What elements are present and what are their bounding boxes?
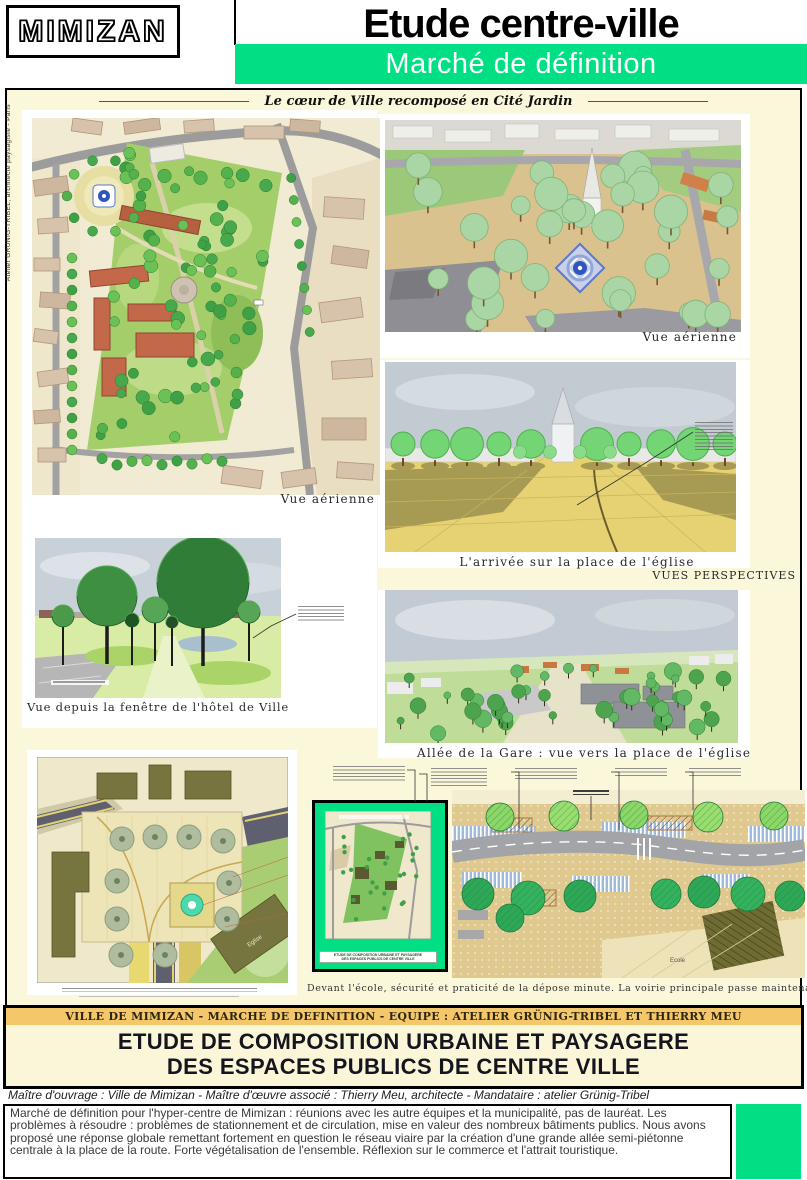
micro-annotation-2: [431, 768, 487, 788]
micro-annotation-5: [689, 768, 741, 778]
caption-plan-aerial: Vue aérienne: [157, 492, 375, 506]
footer-title-box: VILLE DE MIMIZAN - MARCHE DE DEFINITION …: [3, 1005, 804, 1089]
key-plan-caption: ETUDE DE COMPOSITION URBAINE ET PAYSAGER…: [319, 951, 437, 963]
tagline-rule-left: [99, 101, 249, 102]
caption-allee: Allée de la Gare : vue vers la place de …: [417, 746, 739, 760]
key-plan-inset: ETUDE DE COMPOSITION URBAINE ET PAYSAGER…: [312, 800, 448, 972]
arrival-view-image: [385, 362, 736, 552]
micro-annotation-3: [515, 768, 577, 781]
poster-board: Atelier GRUNIG-TRIBEL, architecte paysag…: [5, 88, 802, 1007]
credits-line: Maître d'ouvrage : Ville de Mimizan - Ma…: [8, 1088, 788, 1102]
hotel-window-view-image: [35, 538, 281, 698]
church-square-plan-image: Eglise: [37, 757, 288, 983]
mimizan-logo-box: MIMIZAN: [6, 5, 180, 58]
school-street-plan-image: Ecole: [452, 790, 805, 978]
micro-annotation-hotel: [298, 606, 344, 622]
subtitle-bar: Marché de définition: [235, 44, 807, 84]
section-label-vues-perspectives: VUES PERSPECTIVES: [576, 569, 796, 582]
car-icon: [254, 300, 263, 305]
caption-school: Devant l'école, sécurité et praticité de…: [307, 983, 747, 994]
page-subtitle: Marché de définition: [385, 48, 656, 81]
allee-gare-view-image: [385, 590, 738, 743]
header-divider: [234, 0, 236, 45]
ecole-label: Ecole: [670, 958, 686, 964]
study-title: ETUDE DE COMPOSITION URBAINE ET PAYSAGER…: [6, 1029, 801, 1079]
description-box: Marché de définition pour l'hyper-centre…: [3, 1104, 732, 1179]
site-plan-image: [32, 118, 380, 495]
key-plan-image: [325, 811, 431, 939]
fountain-icon: [93, 185, 115, 207]
micro-caption-plan-2: [79, 996, 239, 999]
micro-caption-plan: [62, 988, 257, 992]
micro-annotation-4: [615, 768, 667, 778]
caption-hotel-view: Vue depuis la fenêtre de l'hôtel de Vill…: [17, 700, 299, 714]
team-banner: VILLE DE MIMIZAN - MARCHE DE DEFINITION …: [6, 1008, 801, 1025]
side-credit: Atelier GRUNIG-TRIBEL, architecte paysag…: [5, 104, 12, 281]
micro-annotation-1: [333, 766, 405, 783]
mimizan-logo: MIMIZAN: [18, 15, 167, 49]
tagline-rule-right: [588, 101, 708, 102]
micro-annotation-arrival: [695, 422, 733, 452]
tagline-row: Le cœur de Ville recomposé en Cité Jardi…: [7, 94, 800, 109]
page-title: Etude centre-ville: [240, 2, 802, 47]
pond: [177, 636, 237, 652]
poster-page: MIMIZAN Etude centre-ville Marché de déf…: [0, 0, 807, 1180]
tagline: Le cœur de Ville recomposé en Cité Jardi…: [265, 94, 573, 109]
green-corner-swatch: [736, 1104, 801, 1179]
dome-building-icon: [171, 277, 197, 303]
aerial-view-image: [385, 120, 741, 332]
caption-aerial-right: Vue aérienne: [547, 330, 737, 344]
micro-annotation-mid-label: [573, 790, 609, 795]
plan-fountain-icon: [170, 883, 214, 927]
caption-arrival: L'arrivée sur la place de l'église: [427, 555, 727, 569]
